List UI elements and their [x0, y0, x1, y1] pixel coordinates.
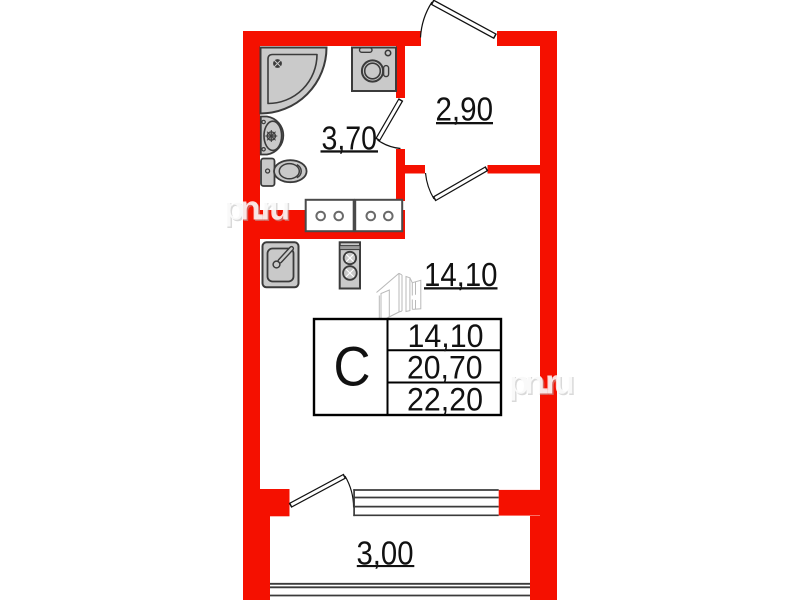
svg-text:pn.ru: pn.ru — [224, 190, 291, 228]
svg-text:pn.ru: pn.ru — [508, 364, 575, 402]
svg-text:20,70: 20,70 — [407, 350, 483, 386]
svg-text:22,20: 22,20 — [407, 381, 483, 417]
svg-text:С: С — [334, 335, 371, 398]
svg-text:14,10: 14,10 — [408, 318, 484, 354]
svg-text:2,90: 2,90 — [436, 91, 494, 128]
